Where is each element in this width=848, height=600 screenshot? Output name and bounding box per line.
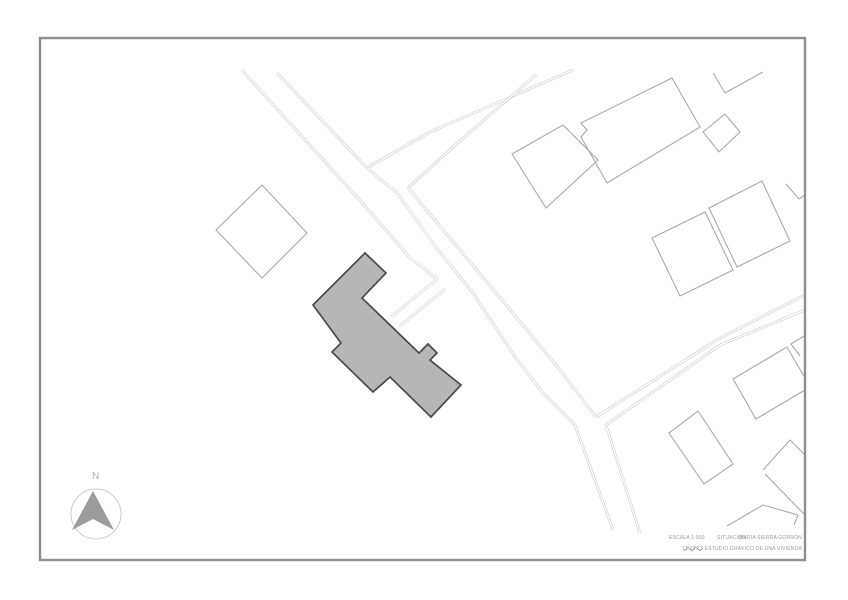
building-mid-right-building	[669, 411, 733, 484]
sheet-frame	[40, 38, 805, 560]
building-diamond-west	[216, 185, 307, 278]
site-plan-sheet: N ESCALA 1:500 SITUACIÓN MARÍA SIERRA GO…	[0, 0, 848, 600]
building-ne-parcel-2	[652, 212, 733, 296]
scale-label: ESCALA 1:500	[669, 535, 705, 541]
outline-top-right-partial	[713, 72, 763, 93]
road-ne-road-upper	[367, 70, 573, 168]
road-core-east-road-upper	[596, 295, 805, 417]
outline-right-corner-partial	[791, 336, 804, 356]
north-label: N	[92, 471, 99, 482]
outline-se-corner-partial	[763, 440, 806, 470]
road-core-ne-road-lower	[408, 74, 537, 188]
building-ne-parcel-1	[709, 181, 790, 267]
outline-se-edge-partial	[765, 474, 804, 514]
author-name: MARÍA SIERRA GORRÓN	[739, 535, 802, 541]
building-square-north-building	[512, 125, 598, 208]
site-plan-svg	[0, 0, 848, 600]
road-east-road-upper	[596, 295, 805, 417]
building-main-house	[313, 253, 461, 417]
building-right-clipped-building	[733, 347, 805, 419]
building-small-diamond-north	[703, 114, 740, 152]
title-footer: 11.12.13 ESTUDIO GRÁFICO DE UNA VIVIENDA	[682, 546, 802, 552]
building-big-north-building	[581, 78, 700, 183]
outline-south-house-partial	[727, 505, 798, 526]
road-core-nw-road-right	[277, 73, 367, 168]
outline-right-upper-partial	[786, 184, 805, 199]
road-core-driveway-spur	[400, 289, 445, 326]
